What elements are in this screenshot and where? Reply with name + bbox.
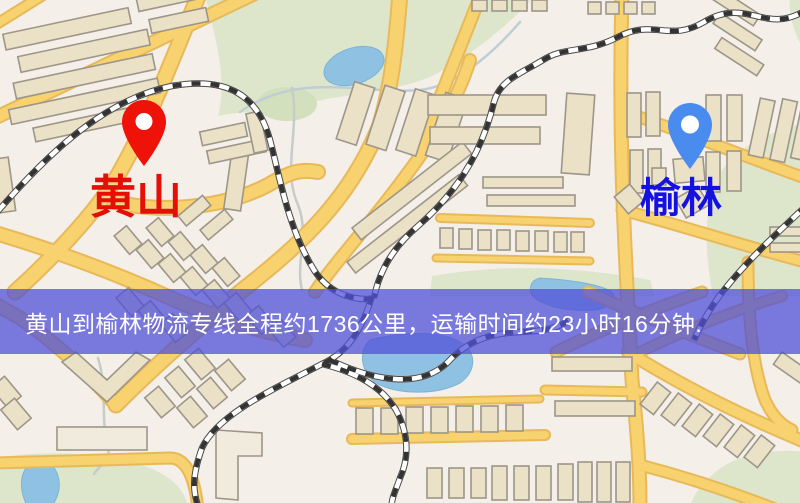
map-screenshot: 黄山 榆林 黄山到榆林物流专线全程约1736公里，运输时间约23小时16分钟. [0,0,800,503]
route-info-text: 黄山到榆林物流专线全程约1736公里，运输时间约23小时16分钟. [0,305,702,339]
origin-city-label: 黄山 [90,174,182,220]
destination-city-label: 榆林 [640,178,722,219]
route-info-banner: 黄山到榆林物流专线全程约1736公里，运输时间约23小时16分钟. [0,289,800,354]
map-canvas [0,0,800,503]
